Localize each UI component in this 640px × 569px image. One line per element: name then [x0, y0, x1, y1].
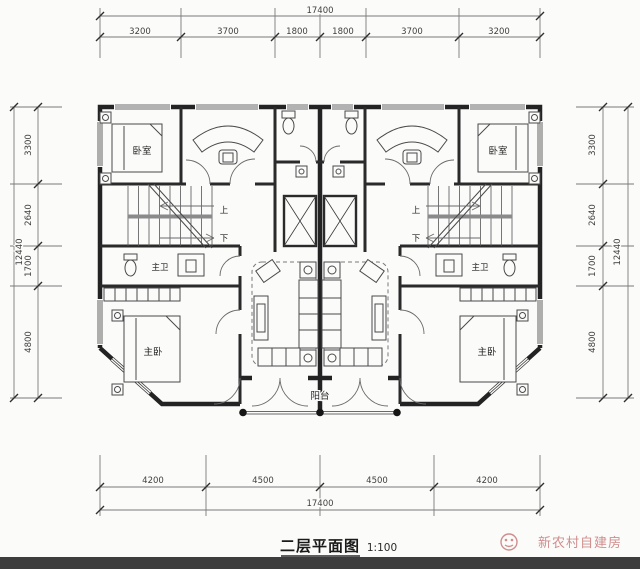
stair-direction-arrow: [426, 202, 480, 242]
master-bath-right: 主卫: [436, 254, 516, 276]
toilet-icon: [504, 260, 515, 276]
railing-post: [393, 409, 401, 417]
stair-direction-arrow: [160, 202, 214, 242]
watermark-logo-icon: [501, 534, 517, 550]
nightstand: [112, 384, 123, 395]
staircase-left: 上 下: [128, 184, 229, 248]
curved-desk: [193, 126, 263, 152]
stair-up-label: 上: [412, 206, 421, 216]
dimension-chain-left: 12440 3300 2640 1700 4800: [10, 103, 62, 402]
toilet-tank: [345, 111, 358, 118]
master-bath-left: 主卫: [124, 254, 204, 276]
floor-plan-drawing: 17400 3200 3700 1800 1800 3700 3200 1244…: [0, 0, 640, 569]
side-table: [300, 262, 316, 278]
bedroom-top-left: 卧室: [100, 112, 162, 184]
master-bedroom-right: 主卧: [460, 288, 536, 395]
shower: [178, 254, 204, 276]
dim-top-segment-label: 3700: [401, 27, 423, 37]
master-bath-right-label: 主卫: [471, 262, 489, 273]
sitting-area-right: [322, 260, 388, 366]
tv-cabinet: [372, 296, 386, 340]
dim-right-total-label: 12440: [613, 238, 623, 265]
dim-top-segment-label: 1800: [286, 27, 308, 37]
watermark-logo-mouth: [505, 545, 513, 547]
dim-top-total-label: 17400: [306, 6, 333, 16]
dim-bottom-segment-label: 4200: [142, 476, 164, 486]
dim-bottom-segment-label: 4500: [252, 476, 274, 486]
nightstand: [517, 384, 528, 395]
sitting-area-left: [252, 260, 318, 366]
shower: [436, 254, 462, 276]
dim-extension-lines: [576, 107, 634, 398]
armchair: [360, 260, 384, 283]
drawing-title: 二层平面图: [280, 537, 360, 555]
dim-left-segment-label: 2640: [24, 204, 34, 226]
dim-top-segment-label: 3700: [217, 27, 239, 37]
side-table: [300, 350, 316, 366]
dimension-chain-top: 17400 3200 3700 1800 1800 3700 3200: [96, 6, 544, 58]
master-bath-left-label: 主卫: [151, 262, 169, 273]
nightstand: [529, 173, 540, 184]
washbasin-icon: [296, 166, 307, 177]
railing-post: [316, 409, 324, 417]
nightstand: [517, 310, 528, 321]
dim-right-segment-label: 1700: [588, 255, 598, 277]
staircase-right: 上 下: [412, 184, 512, 248]
bedroom-left-label: 卧室: [132, 145, 151, 157]
stair-down-label: 下: [220, 234, 229, 244]
toilet-icon: [346, 118, 357, 134]
dim-top-segment-label: 3200: [129, 27, 151, 37]
nightstand: [529, 112, 540, 123]
railing-post: [239, 409, 247, 417]
dimension-chain-right: 12440 3300 2640 1700 4800: [576, 103, 634, 402]
stair-up-label: 上: [220, 206, 229, 216]
toilet-tank: [503, 254, 516, 260]
master-bedroom-right-label: 主卧: [477, 346, 497, 358]
balcony-label: 阳台: [310, 390, 329, 402]
bedroom-right-label: 卧室: [488, 145, 507, 157]
washbasin-icon: [333, 166, 344, 177]
watermark-text: 新农村自建房: [538, 535, 622, 551]
stair-down-label: 下: [412, 234, 421, 244]
master-bedroom-left-label: 主卧: [143, 346, 163, 358]
watermark-logo-eye: [505, 539, 508, 542]
dim-top-segment-label: 3200: [488, 27, 510, 37]
side-table: [324, 262, 340, 278]
nightstand: [100, 173, 111, 184]
floor-plan-page: 17400 3200 3700 1800 1800 3700 3200 1244…: [0, 0, 640, 569]
drawing-scale: 1:100: [367, 542, 397, 554]
nightstand: [100, 112, 111, 123]
watermark: 新农村自建房: [501, 534, 622, 551]
toilet-tank: [124, 254, 137, 260]
dim-bottom-segment-label: 4500: [366, 476, 388, 486]
dim-bottom-segment-label: 4200: [476, 476, 498, 486]
dimension-chain-bottom: 4200 4500 4500 4200 17400: [96, 455, 544, 516]
nightstand: [112, 310, 123, 321]
tv-cabinet: [254, 296, 268, 340]
title-block: 二层平面图 1:100: [280, 537, 397, 556]
dim-right-segment-label: 2640: [588, 204, 598, 226]
dim-left-segment-label: 3300: [24, 134, 34, 156]
dim-right-segment-label: 3300: [588, 134, 598, 156]
master-bedroom-left: 主卧: [104, 288, 180, 395]
side-table: [324, 350, 340, 366]
bottom-bar: [0, 557, 640, 569]
toilet-tank: [282, 111, 295, 118]
dim-left-segment-label: 1700: [24, 255, 34, 277]
study-left: [193, 126, 263, 164]
toilet-icon: [125, 260, 136, 276]
dim-top-segment-label: 1800: [332, 27, 354, 37]
toilet-icon: [283, 118, 294, 134]
armchair: [256, 260, 280, 283]
sofa: [258, 348, 300, 366]
dim-right-segment-label: 4800: [588, 331, 598, 353]
study-right: [377, 126, 447, 164]
dim-left-segment-label: 4800: [24, 331, 34, 353]
bedroom-top-right: 卧室: [478, 112, 540, 184]
curved-desk: [377, 126, 447, 152]
dim-bottom-total-label: 17400: [306, 499, 333, 509]
sofa: [340, 348, 382, 366]
watermark-logo-eye: [511, 539, 514, 542]
